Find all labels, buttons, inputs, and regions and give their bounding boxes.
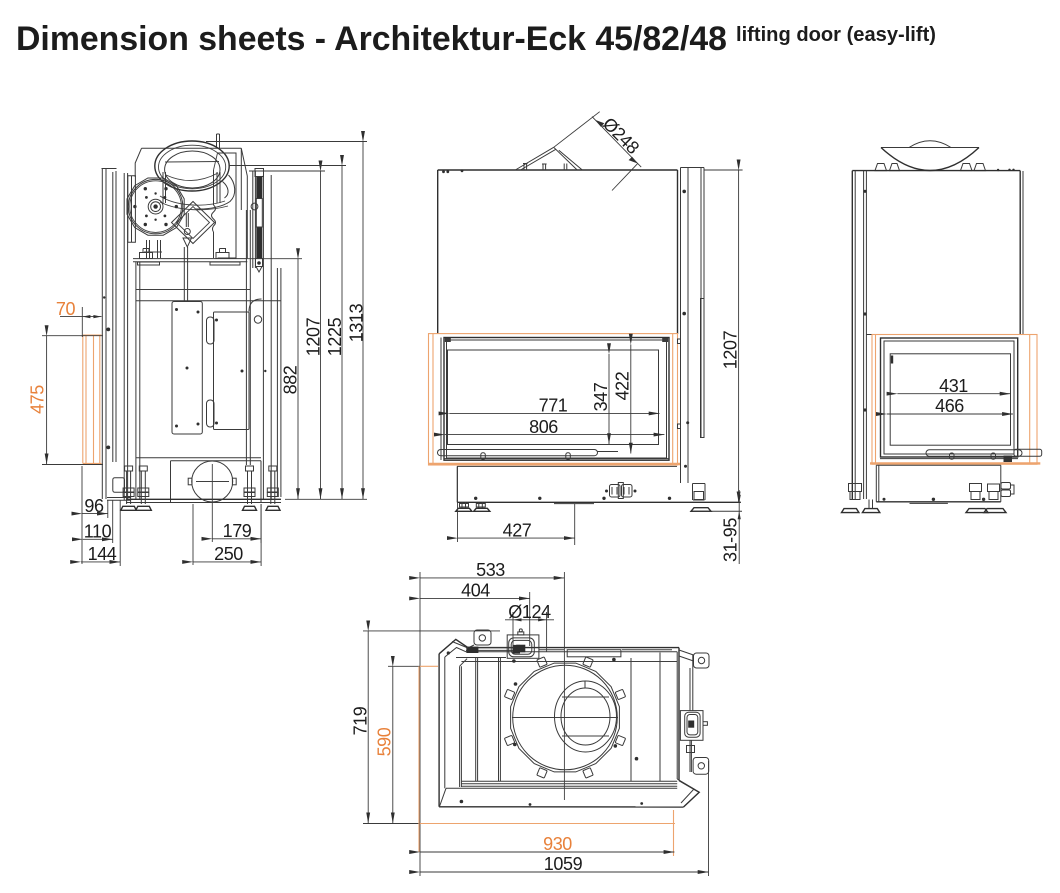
svg-text:431: 431 [939, 376, 968, 396]
svg-text:179: 179 [223, 521, 252, 541]
svg-text:1313: 1313 [346, 303, 366, 342]
svg-text:1207: 1207 [720, 330, 740, 369]
svg-text:422: 422 [613, 371, 633, 400]
svg-text:144: 144 [88, 544, 117, 564]
svg-text:930: 930 [543, 834, 572, 854]
svg-text:31-95: 31-95 [721, 518, 741, 562]
svg-text:882: 882 [280, 365, 300, 394]
svg-text:806: 806 [529, 417, 558, 437]
svg-text:347: 347 [591, 382, 611, 411]
svg-text:590: 590 [375, 727, 395, 756]
svg-text:427: 427 [503, 520, 532, 540]
svg-text:1059: 1059 [544, 854, 583, 874]
svg-text:70: 70 [56, 299, 76, 319]
svg-text:110: 110 [84, 522, 112, 542]
svg-text:Ø124: Ø124 [508, 602, 551, 622]
svg-text:719: 719 [350, 706, 370, 735]
svg-text:475: 475 [27, 385, 47, 414]
svg-text:Dimension sheets - Architektur: Dimension sheets - Architektur-Eck 45/82… [16, 20, 727, 58]
svg-text:96: 96 [84, 496, 104, 516]
svg-text:771: 771 [539, 396, 568, 416]
svg-text:466: 466 [935, 396, 964, 416]
svg-text:404: 404 [461, 581, 490, 601]
svg-text:533: 533 [476, 560, 505, 580]
svg-text:lifting door (easy-lift): lifting door (easy-lift) [736, 24, 936, 46]
svg-text:1225: 1225 [325, 317, 345, 356]
svg-text:1207: 1207 [303, 317, 323, 356]
svg-text:250: 250 [214, 544, 243, 564]
